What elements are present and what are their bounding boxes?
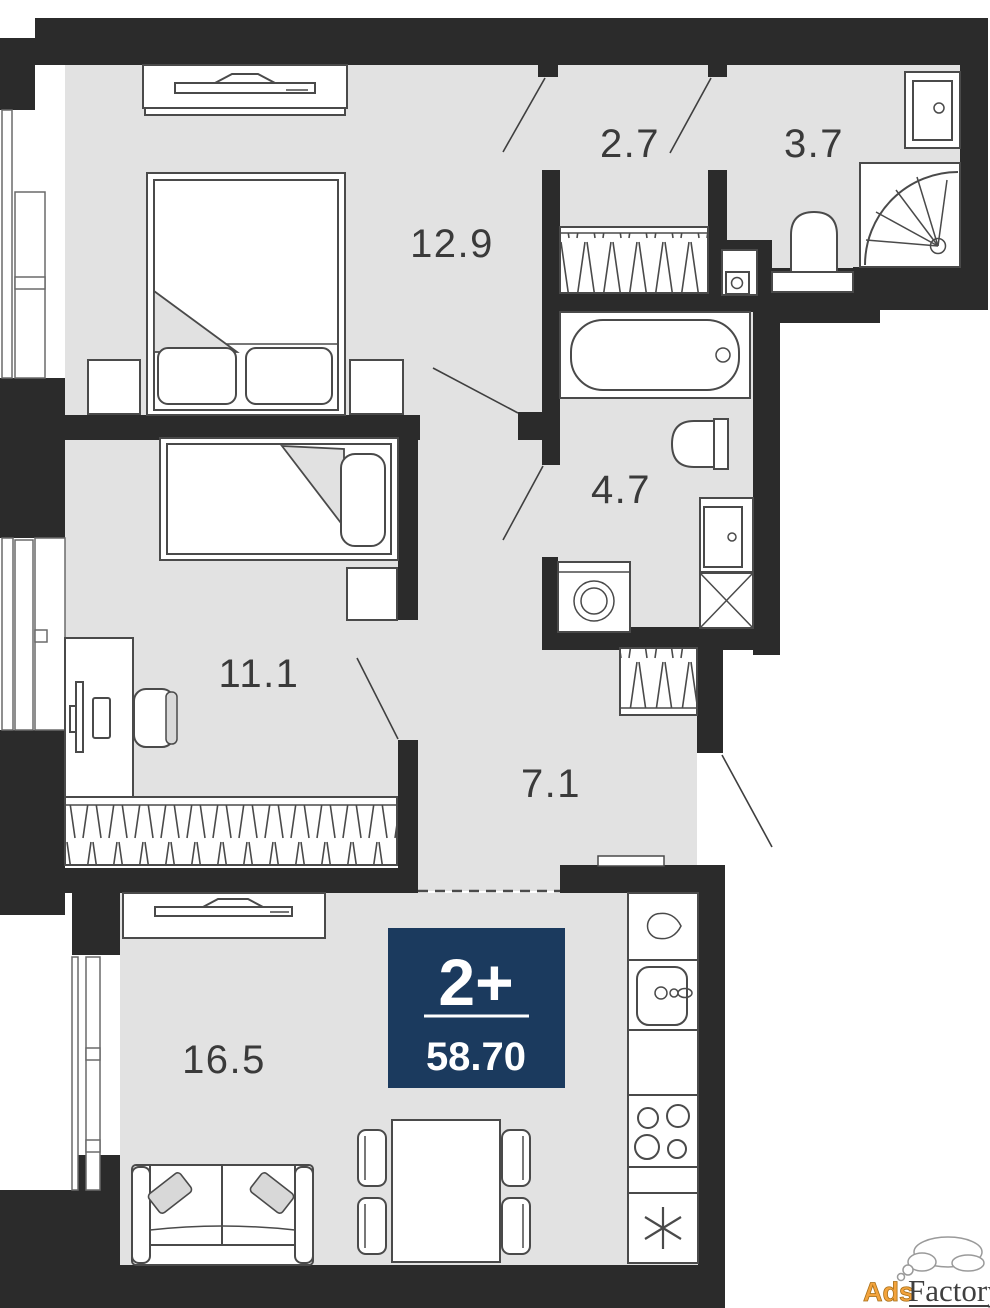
watermark: Ads Factory xyxy=(863,1237,990,1308)
nightstand-right xyxy=(350,360,403,414)
bathtub-icon xyxy=(560,312,750,398)
floor-doorway-bedroom2 xyxy=(398,620,418,740)
badge-rooms-count: 2+ xyxy=(438,945,513,1019)
room-label-bedroom2: 11.1 xyxy=(219,652,300,696)
door-entrance xyxy=(722,755,772,847)
room-label-living: 16.5 xyxy=(182,1038,266,1082)
room-label-hallway: 2.7 xyxy=(600,122,660,166)
toilet-icon-bathroom-big xyxy=(672,419,728,469)
sink-cabinet-icon xyxy=(700,498,753,572)
room-label-corridor: 7.1 xyxy=(521,762,581,806)
badge-total-area: 58.70 xyxy=(426,1035,526,1079)
room-label-bedroom1: 12.9 xyxy=(410,222,494,266)
window-living xyxy=(72,957,100,1190)
floor-plan: 12.9 2.7 3.7 4.7 11.1 7.1 16.5 2+ 58.70 … xyxy=(0,0,990,1308)
watermark-factory: Factory xyxy=(908,1273,990,1308)
wardrobe-hallway xyxy=(560,227,708,293)
wardrobe-corridor xyxy=(620,648,697,715)
tv-console-bedroom1 xyxy=(143,65,347,115)
desk xyxy=(65,638,133,802)
room-label-bathroom-big: 4.7 xyxy=(591,468,651,512)
double-bed xyxy=(147,173,345,415)
cabinet-x-icon xyxy=(700,573,753,628)
bedside-cabinet xyxy=(347,568,397,620)
sofa-icon xyxy=(132,1165,313,1265)
sink-icon-bathroom-small xyxy=(905,72,960,148)
wardrobe-bedroom2 xyxy=(65,797,397,865)
window-bedroom2 xyxy=(2,538,65,730)
area-badge: 2+ 58.70 xyxy=(388,928,565,1088)
single-bed xyxy=(160,438,398,560)
desk-chair xyxy=(134,689,177,747)
monitor-icon xyxy=(76,682,83,752)
floor-plan-page: 12.9 2.7 3.7 4.7 11.1 7.1 16.5 2+ 58.70 … xyxy=(0,0,990,1308)
room-label-bathroom-small: 3.7 xyxy=(784,122,844,166)
watermark-ads: Ads xyxy=(863,1277,914,1307)
window-bedroom1 xyxy=(2,110,45,378)
water-heater-box xyxy=(722,250,757,295)
kitchen-counter xyxy=(628,893,698,1263)
shower-icon xyxy=(860,163,960,267)
nightstand-left xyxy=(88,360,140,414)
vent-box xyxy=(598,856,664,866)
washing-machine-icon xyxy=(558,562,630,632)
tv-console-living xyxy=(123,893,325,938)
